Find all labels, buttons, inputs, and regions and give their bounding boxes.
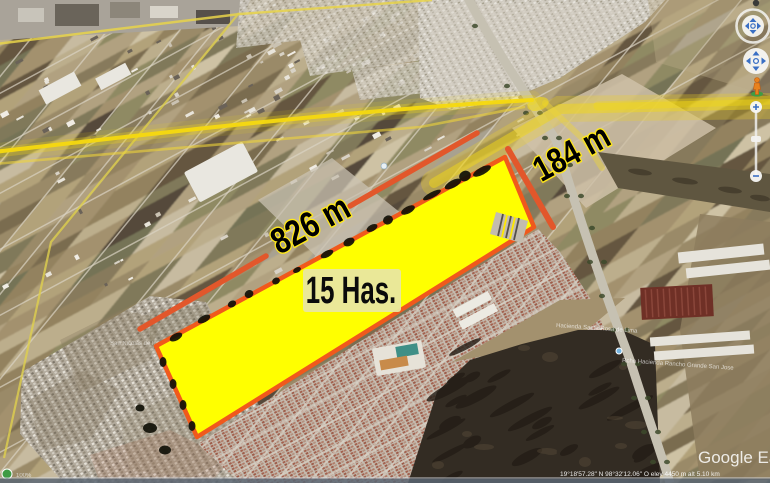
svg-text:Google Earth: Google Earth — [698, 448, 770, 467]
svg-text:19°18'57.28" N 98°32'12.06": 19°18'57.28" N 98°32'12.06" O elev 4450 … — [560, 470, 720, 478]
svg-text:15 Has.: 15 Has. — [306, 269, 396, 311]
